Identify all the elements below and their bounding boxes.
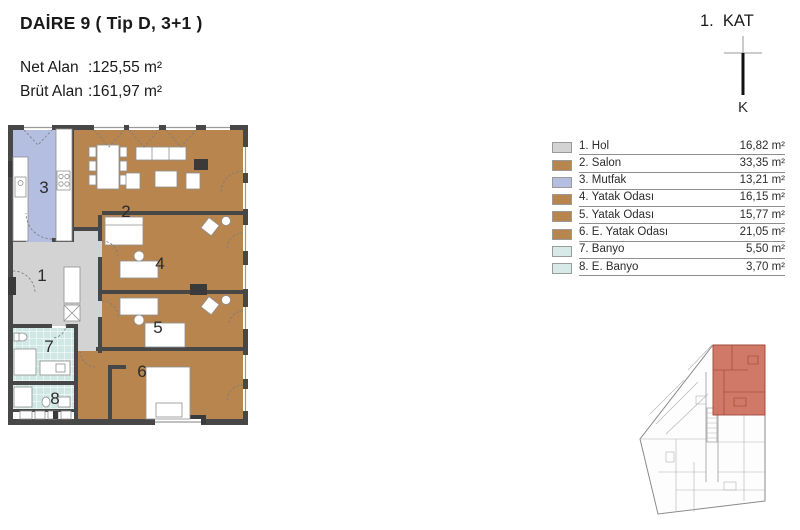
room-number-yatak-2: 5 <box>153 318 162 337</box>
gross-area-value: :161,97 m² <box>88 83 162 101</box>
room-number-e-banyo: 8 <box>50 389 59 408</box>
legend-swatch <box>552 246 572 257</box>
legend-area: 33,35 m² <box>740 157 785 171</box>
page-title: DAİRE 9 ( Tip D, 3+1 ) <box>20 13 203 34</box>
legend-item: 3. Mutfak13,21 m² <box>552 173 785 190</box>
net-area-value: :125,55 m² <box>88 59 162 77</box>
legend-area: 21,05 m² <box>740 226 785 240</box>
room-number-yatak-1: 4 <box>155 254 164 273</box>
floor-plan-page: DAİRE 9 ( Tip D, 3+1 ) Net Alan :125,55 … <box>0 0 800 530</box>
legend-swatch <box>552 194 572 205</box>
legend-label: 2. Salon <box>579 157 621 171</box>
legend-area: 5,50 m² <box>746 243 785 257</box>
legend-label: 3. Mutfak <box>579 174 626 188</box>
legend-label: 8. E. Banyo <box>579 261 638 275</box>
legend-swatch <box>552 177 572 188</box>
gross-area-label: Brüt Alan <box>20 83 88 101</box>
legend-area: 13,21 m² <box>740 174 785 188</box>
room-number-e-yatak: 6 <box>137 362 146 381</box>
legend-area: 16,15 m² <box>740 191 785 205</box>
north-arrow-icon: K <box>722 32 766 118</box>
room-number-banyo: 7 <box>44 337 53 356</box>
legend-swatch <box>552 142 572 153</box>
legend-label: 7. Banyo <box>579 243 624 257</box>
legend-label: 1. Hol <box>579 140 609 154</box>
legend-item: 2. Salon33,35 m² <box>552 155 785 172</box>
legend-label: 5. Yatak Odası <box>579 209 654 223</box>
room-legend: 1. Hol16,82 m² 2. Salon33,35 m² 3. Mutfa… <box>552 138 785 276</box>
legend-item: 8. E. Banyo3,70 m² <box>552 259 785 276</box>
legend-item: 6. E. Yatak Odası21,05 m² <box>552 224 785 241</box>
site-plan-highlighted-unit <box>713 345 765 415</box>
area-summary: Net Alan :125,55 m² Brüt Alan :161,97 m² <box>20 59 162 107</box>
north-label: K <box>738 99 748 116</box>
legend-item: 1. Hol16,82 m² <box>552 138 785 155</box>
legend-swatch <box>552 211 572 222</box>
room-number-mutfak: 3 <box>39 178 48 197</box>
legend-item: 5. Yatak Odası15,77 m² <box>552 207 785 224</box>
room-number-hol: 1 <box>37 266 46 285</box>
apartment-floor-plan: 1 2 3 4 5 6 7 8 <box>8 121 248 429</box>
legend-area: 16,82 m² <box>740 140 785 154</box>
legend-swatch <box>552 229 572 240</box>
legend-swatch <box>552 160 572 171</box>
room-number-salon: 2 <box>121 202 130 221</box>
legend-item: 7. Banyo5,50 m² <box>552 242 785 259</box>
site-key-plan <box>636 342 794 528</box>
legend-area: 15,77 m² <box>740 209 785 223</box>
floor-label: 1. KAT <box>700 12 754 31</box>
legend-label: 4. Yatak Odası <box>579 191 654 205</box>
legend-swatch <box>552 263 572 274</box>
legend-area: 3,70 m² <box>746 261 785 275</box>
legend-label: 6. E. Yatak Odası <box>579 226 668 240</box>
net-area-label: Net Alan <box>20 59 88 77</box>
legend-item: 4. Yatak Odası16,15 m² <box>552 190 785 207</box>
